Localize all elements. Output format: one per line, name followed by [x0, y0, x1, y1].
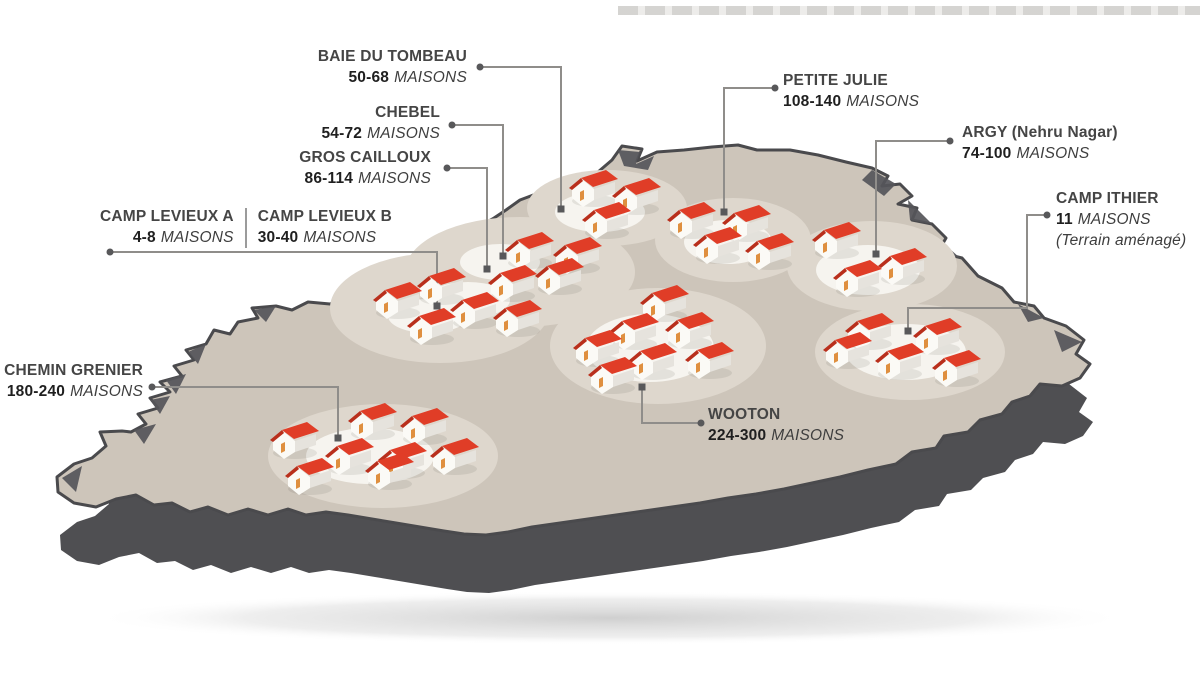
label-baie-du-tombeau: BAIE DU TOMBEAU 50-68MAISONS [318, 46, 467, 88]
settlement-name: CHEMIN GRENIER [4, 360, 143, 381]
leader-end-chemin-grenier [335, 435, 342, 442]
leader-dot-petite-julie [772, 85, 779, 92]
settlement-name: CAMP LEVIEUX A [100, 206, 234, 227]
mauritius-map [0, 0, 1200, 675]
settlement-name: WOOTON [708, 404, 844, 425]
leader-end-wooton [639, 384, 646, 391]
settlement-note: (Terrain aménagé) [1056, 230, 1186, 251]
settlement-value: 86-114MAISONS [299, 168, 431, 189]
leader-dot-chemin-grenier [149, 384, 156, 391]
settlement-name: PETITE JULIE [783, 70, 919, 91]
leader-end-gros-cailloux [484, 266, 491, 273]
settlement-value: 30-40MAISONS [258, 227, 392, 248]
settlement-name: GROS CAILLOUX [299, 147, 431, 168]
leader-dot-camp-ithier [1044, 212, 1051, 219]
label-gros-cailloux: GROS CAILLOUX 86-114MAISONS [299, 147, 431, 189]
leader-dot-chebel [449, 122, 456, 129]
settlement-value: 224-300MAISONS [708, 425, 844, 446]
leader-dot-gros-cailloux [444, 165, 451, 172]
leader-end-camp-levieux [434, 303, 441, 310]
label-petite-julie: PETITE JULIE 108-140MAISONS [783, 70, 919, 112]
label-camp-levieux-b: CAMP LEVIEUX B 30-40MAISONS [258, 206, 392, 248]
leader-end-chebel [500, 253, 507, 260]
settlement-name: CAMP ITHIER [1056, 188, 1186, 209]
infographic-canvas: BAIE DU TOMBEAU 50-68MAISONS CHEBEL 54-7… [0, 0, 1200, 675]
settlement-name: BAIE DU TOMBEAU [318, 46, 467, 67]
label-camp-levieux-a: CAMP LEVIEUX A 4-8MAISONS [100, 206, 234, 248]
settlement-value: 180-240MAISONS [4, 381, 143, 402]
leader-end-camp-ithier [905, 328, 912, 335]
label-camp-levieux: CAMP LEVIEUX A 4-8MAISONS CAMP LEVIEUX B… [100, 206, 392, 248]
settlement-name: ARGY (Nehru Nagar) [962, 122, 1118, 143]
leader-end-baie-du-tombeau [558, 206, 565, 213]
label-chemin-grenier: CHEMIN GRENIER 180-240MAISONS [4, 360, 143, 402]
leader-dot-camp-levieux [107, 249, 114, 256]
settlement-value: 74-100MAISONS [962, 143, 1118, 164]
settlement-value: 108-140MAISONS [783, 91, 919, 112]
label-argy: ARGY (Nehru Nagar) 74-100MAISONS [962, 122, 1118, 164]
leader-end-petite-julie [721, 209, 728, 216]
settlement-value: 11MAISONS [1056, 209, 1186, 230]
leader-dot-wooton [698, 420, 705, 427]
label-divider [245, 208, 247, 248]
leader-end-argy [873, 251, 880, 258]
settlement-value: 50-68MAISONS [318, 67, 467, 88]
settlement-name: CAMP LEVIEUX B [258, 206, 392, 227]
settlement-name: CHEBEL [321, 102, 440, 123]
leader-dot-baie-du-tombeau [477, 64, 484, 71]
settlement-value: 4-8MAISONS [100, 227, 234, 248]
island-drop-shadow [90, 591, 1130, 645]
leader-dot-argy [947, 138, 954, 145]
label-wooton: WOOTON 224-300MAISONS [708, 404, 844, 446]
settlement-value: 54-72MAISONS [321, 123, 440, 144]
label-camp-ithier: CAMP ITHIER 11MAISONS (Terrain aménagé) [1056, 188, 1186, 251]
label-chebel: CHEBEL 54-72MAISONS [321, 102, 440, 144]
